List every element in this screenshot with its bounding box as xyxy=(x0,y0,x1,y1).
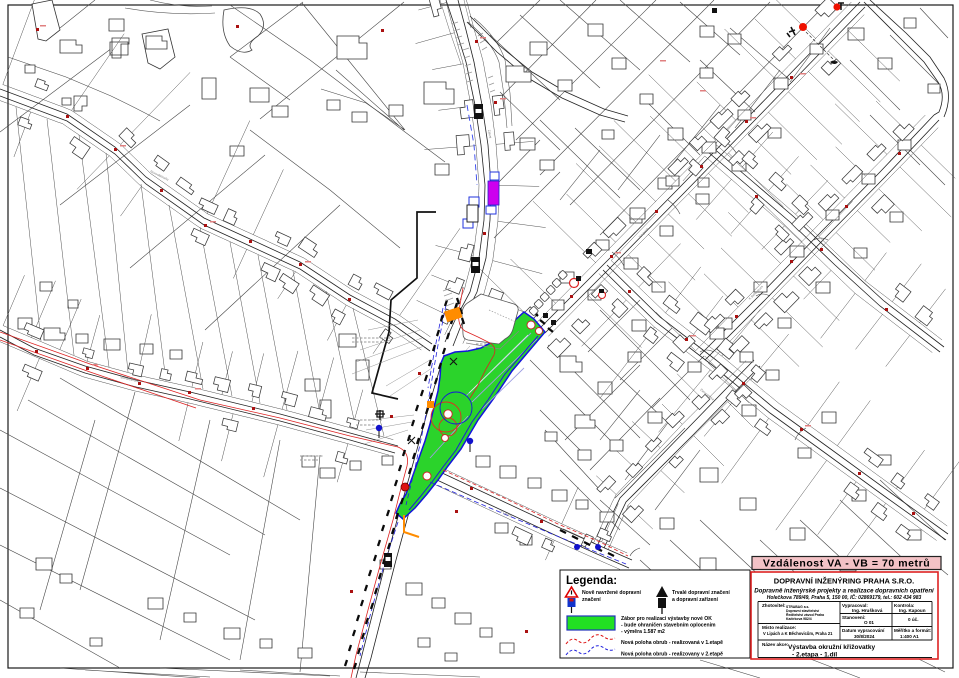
svg-text:Výstavba okružní křižovatky: Výstavba okružní křižovatky xyxy=(788,644,875,651)
svg-text:Datum vypracování: Datum vypracování xyxy=(842,628,885,633)
svg-text:Místo realizace:: Místo realizace: xyxy=(762,625,797,630)
svg-text:Název akce:: Název akce: xyxy=(762,642,789,647)
svg-text:Nově navržené dopravní: Nově navržené dopravní xyxy=(582,590,641,596)
svg-text:Holečkova 789/49, Praha 5, 150: Holečkova 789/49, Praha 5, 150 00, IČ: 0… xyxy=(767,593,922,601)
svg-text:Ing. Kapoun: Ing. Kapoun xyxy=(899,608,926,613)
svg-text:- bude ohraničen stavebním opl: - bude ohraničen stavebním oplocenim xyxy=(621,623,716,629)
svg-text:V Lipách a K Běchovicům, Praha: V Lipách a K Běchovicům, Praha 21 xyxy=(763,631,833,636)
svg-text:Nová poloha obrub - realizovan: Nová poloha obrub - realizovaná v 1.etap… xyxy=(621,640,723,646)
svg-text:O 01: O 01 xyxy=(864,620,874,625)
svg-text:Vzdálenost VA - VB = 70 metrů: Vzdálenost VA - VB = 70 metrů xyxy=(763,558,930,570)
svg-text:Měřítko a formát:: Měřítko a formát: xyxy=(894,628,932,633)
svg-text:DOPRAVNÍ INŽENÝRING PRAHA S.R.: DOPRAVNÍ INŽENÝRING PRAHA S.R.O. xyxy=(774,577,914,586)
svg-text:Zábor pro realizaci výstavby n: Zábor pro realizaci výstavby nové OK xyxy=(621,616,712,622)
svg-text:- výměra 1.587 m2: - výměra 1.587 m2 xyxy=(621,629,665,635)
svg-text:Stanovení:: Stanovení: xyxy=(842,615,866,620)
svg-text:Legenda:: Legenda: xyxy=(566,575,617,587)
svg-text:Ing. Hrušková: Ing. Hrušková xyxy=(852,608,883,613)
svg-text:- 2.etapa - 1.díl: - 2.etapa - 1.díl xyxy=(792,652,837,659)
svg-text:značení: značení xyxy=(582,597,601,603)
svg-text:Trvalé dopravní značení: Trvalé dopravní značení xyxy=(672,590,730,596)
svg-text:Dopravně inženýrské projekty a: Dopravně inženýrské projekty a realizace… xyxy=(754,588,935,595)
svg-text:30/8/2024: 30/8/2024 xyxy=(854,634,875,639)
svg-text:1:400 A1: 1:400 A1 xyxy=(900,634,919,639)
svg-text:Kačírkova 982/4: Kačírkova 982/4 xyxy=(786,617,812,621)
svg-text:0 úč.: 0 úč. xyxy=(908,617,918,622)
svg-text:Nová poloha obrub - realizovan: Nová poloha obrub - realizovany v 2.etap… xyxy=(621,652,723,658)
svg-text:Zhotovitel:: Zhotovitel: xyxy=(762,603,786,608)
svg-text:a dopravní zařízení: a dopravní zařízení xyxy=(672,597,718,603)
